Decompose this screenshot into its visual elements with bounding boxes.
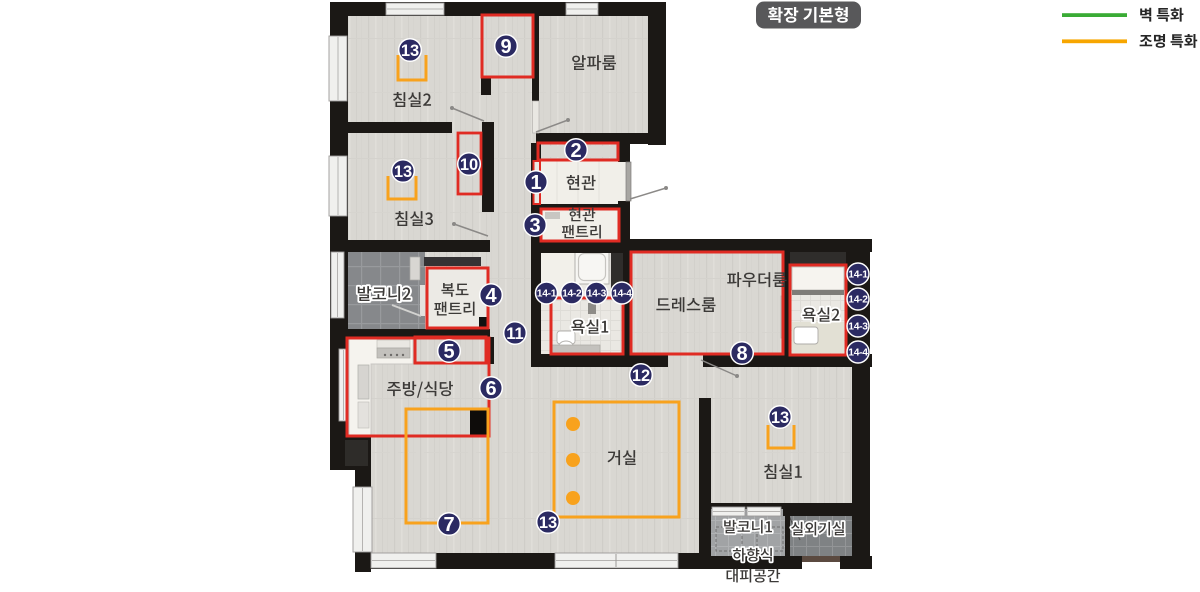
svg-text:14-1: 14-1 <box>537 289 557 300</box>
svg-text:12: 12 <box>632 367 650 385</box>
svg-text:14-2: 14-2 <box>562 289 582 300</box>
svg-text:5: 5 <box>443 341 454 363</box>
svg-text:14-3: 14-3 <box>848 322 868 333</box>
svg-text:14-4: 14-4 <box>612 289 632 300</box>
svg-text:13: 13 <box>771 409 789 427</box>
svg-text:11: 11 <box>506 325 523 343</box>
svg-text:14-3: 14-3 <box>587 289 607 300</box>
svg-text:6: 6 <box>485 378 496 400</box>
svg-text:13: 13 <box>401 42 419 60</box>
svg-text:3: 3 <box>529 215 540 237</box>
svg-text:1: 1 <box>530 172 541 194</box>
svg-text:8: 8 <box>736 343 747 365</box>
svg-text:14-1: 14-1 <box>848 270 868 281</box>
svg-text:10: 10 <box>460 156 478 174</box>
svg-text:9: 9 <box>500 36 511 58</box>
svg-text:14-4: 14-4 <box>848 348 868 359</box>
svg-text:13: 13 <box>539 514 557 532</box>
svg-text:7: 7 <box>443 514 454 536</box>
svg-text:13: 13 <box>394 163 412 181</box>
svg-text:2: 2 <box>570 140 581 162</box>
svg-text:4: 4 <box>485 285 497 307</box>
svg-text:14-2: 14-2 <box>848 295 868 306</box>
